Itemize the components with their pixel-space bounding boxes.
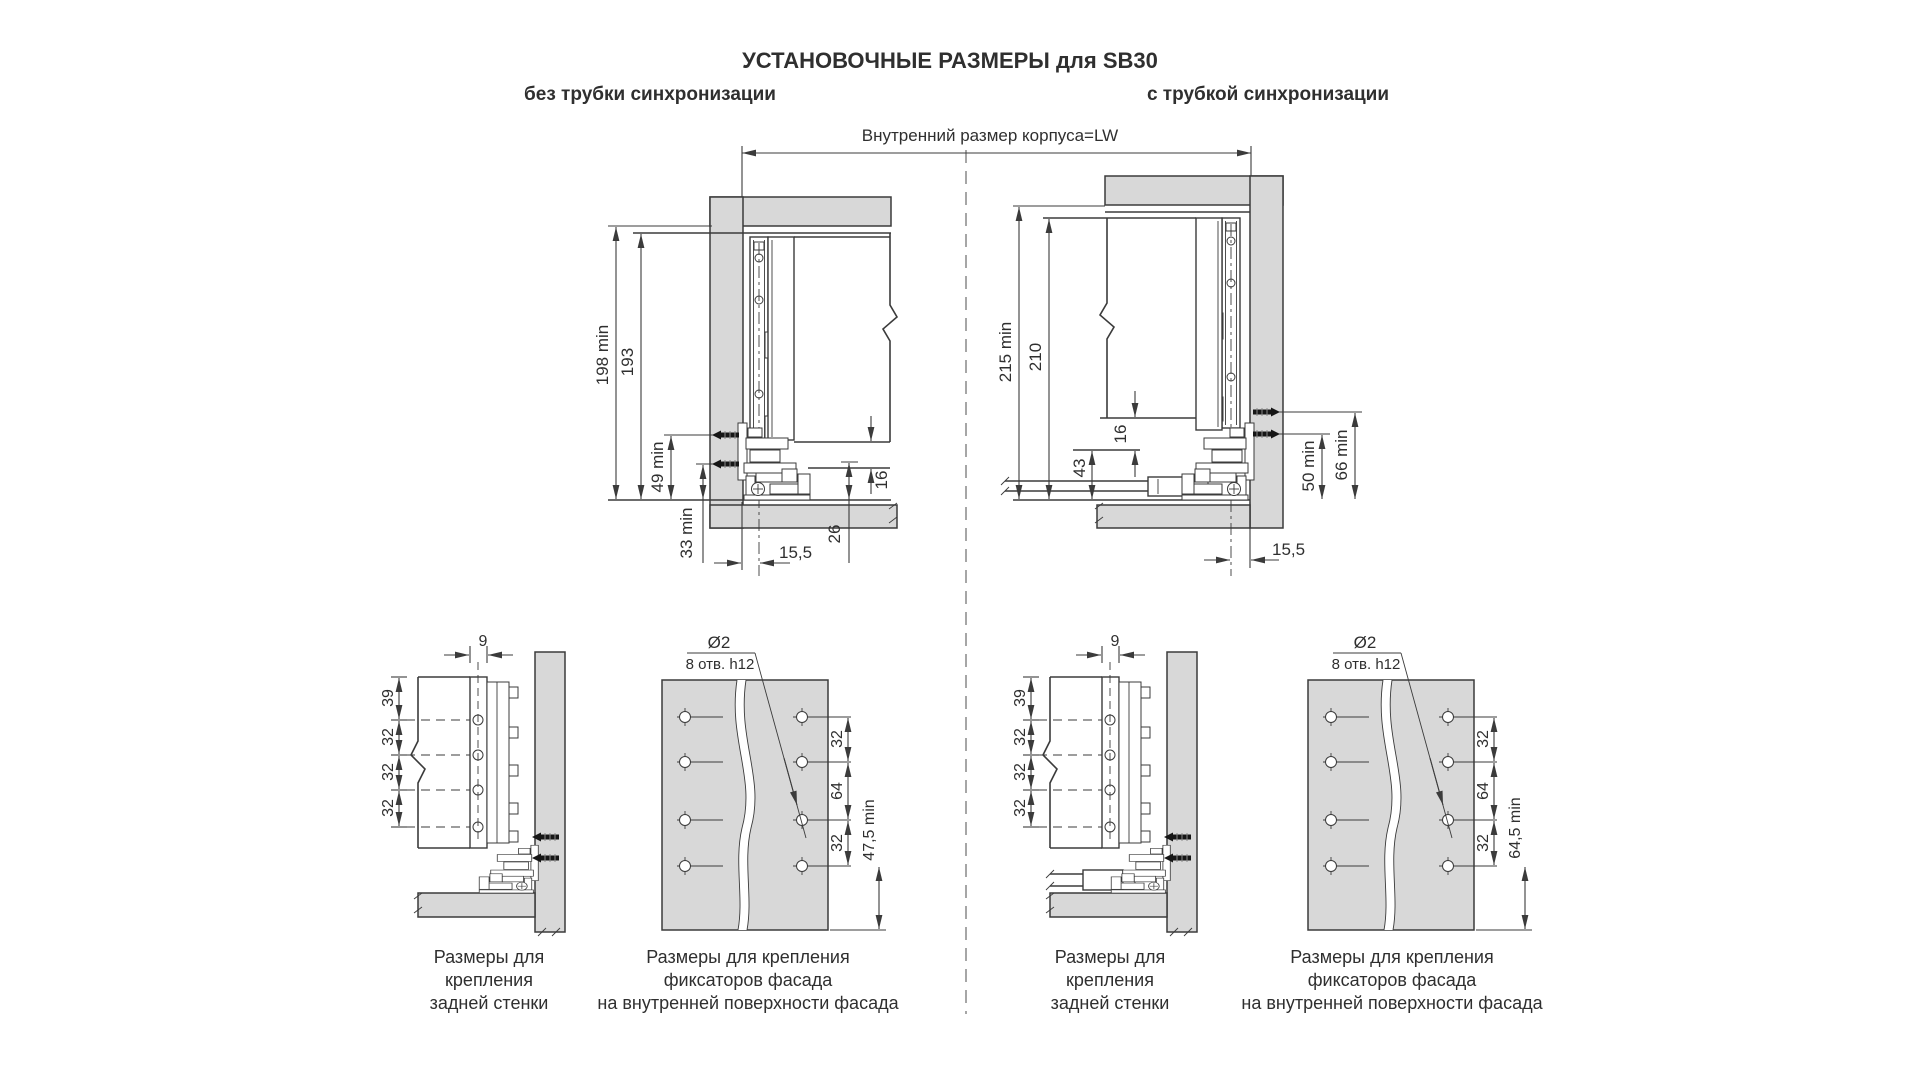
dim-height-min: 215 min <box>996 322 1015 382</box>
caption-line: задней стенки <box>1051 993 1170 1013</box>
heading-with-tube: с трубкой синхронизации <box>1147 84 1389 105</box>
dim-hole-diameter: Ø2 <box>1354 633 1377 652</box>
dim-height: 210 <box>1026 343 1045 371</box>
dim-step2: 64 <box>1475 782 1492 800</box>
dim-step2: 64 <box>829 782 846 800</box>
cabinet-bottom-panel <box>418 893 535 917</box>
technical-drawing: УСТАНОВОЧНЫЕ РАЗМЕРЫ для SB30 без трубки… <box>0 0 1924 1082</box>
caption-line: Размеры для <box>434 947 545 967</box>
dim-tube-height: 43 <box>1070 459 1089 478</box>
caption-line: фиксаторов фасада <box>1308 970 1478 990</box>
dim-top-step: 39 <box>380 689 397 707</box>
cabinet-bottom-panel <box>710 505 897 528</box>
dim-step3: 32 <box>1012 799 1029 817</box>
background <box>0 0 1924 1082</box>
caption-rear-right: Размеры для крепления задней стенки <box>1051 947 1170 1013</box>
dim-edge-min: 64,5 min <box>1507 797 1524 858</box>
installation-drawing-page: УСТАНОВОЧНЫЕ РАЗМЕРЫ для SB30 без трубки… <box>0 0 1924 1082</box>
dim-screw-top: 49 min <box>648 441 667 492</box>
dim-front-offset: 15,5 <box>779 543 812 562</box>
dim-step1: 32 <box>1012 728 1029 746</box>
cabinet-wall <box>1167 652 1197 932</box>
dim-screw-top: 66 min <box>1332 429 1351 480</box>
caption-line: Размеры для <box>1055 947 1166 967</box>
dim-step2: 32 <box>380 763 397 781</box>
dim-step2: 32 <box>1012 763 1029 781</box>
hole-count-note: 8 отв. h12 <box>1332 656 1401 673</box>
caption-rear-left: Размеры для крепления задней стенки <box>430 947 549 1013</box>
dim-screw-bottom: 33 min <box>677 507 696 558</box>
dim-top-step: 39 <box>1012 689 1029 707</box>
dim-bottom-thickness: 16 <box>872 471 891 490</box>
caption-line: на внутренней поверхности фасада <box>1241 993 1543 1013</box>
dim-height-min: 198 min <box>593 325 612 385</box>
dim-bottom-thickness: 16 <box>1111 425 1130 444</box>
page-title: УСТАНОВОЧНЫЕ РАЗМЕРЫ для SB30 <box>742 48 1158 73</box>
cabinet-bottom-panel <box>1050 893 1167 917</box>
dim-bottom-gap: 26 <box>825 525 844 544</box>
heading-no-tube: без трубки синхронизации <box>524 84 776 105</box>
dim-step3: 32 <box>829 834 846 852</box>
hole-count-note: 8 отв. h12 <box>686 656 755 673</box>
dim-screw-bottom: 50 min <box>1299 440 1318 491</box>
caption-line: на внутренней поверхности фасада <box>597 993 899 1013</box>
caption-line: Размеры для крепления <box>1290 947 1493 967</box>
dim-height: 193 <box>618 348 637 376</box>
dim-edge-min: 47,5 min <box>861 799 878 860</box>
dim-hole-offset: 9 <box>479 633 488 650</box>
cabinet-wall <box>535 652 565 932</box>
caption-line: задней стенки <box>430 993 549 1013</box>
dim-step3: 32 <box>380 799 397 817</box>
caption-line: фиксаторов фасада <box>664 970 834 990</box>
dim-step1: 32 <box>829 730 846 748</box>
dim-step1: 32 <box>1475 730 1492 748</box>
caption-line: Размеры для крепления <box>646 947 849 967</box>
dim-step3: 32 <box>1475 834 1492 852</box>
dim-front-offset: 15,5 <box>1272 540 1305 559</box>
cabinet-bottom-panel <box>1097 505 1250 528</box>
dim-step1: 32 <box>380 728 397 746</box>
caption-line: крепления <box>445 970 533 990</box>
cabinet-side-wall <box>1250 176 1283 528</box>
caption-line: крепления <box>1066 970 1154 990</box>
dim-hole-diameter: Ø2 <box>708 633 731 652</box>
dim-hole-offset: 9 <box>1111 633 1120 650</box>
lw-dimension-label: Внутренний размер корпуса=LW <box>862 126 1118 145</box>
